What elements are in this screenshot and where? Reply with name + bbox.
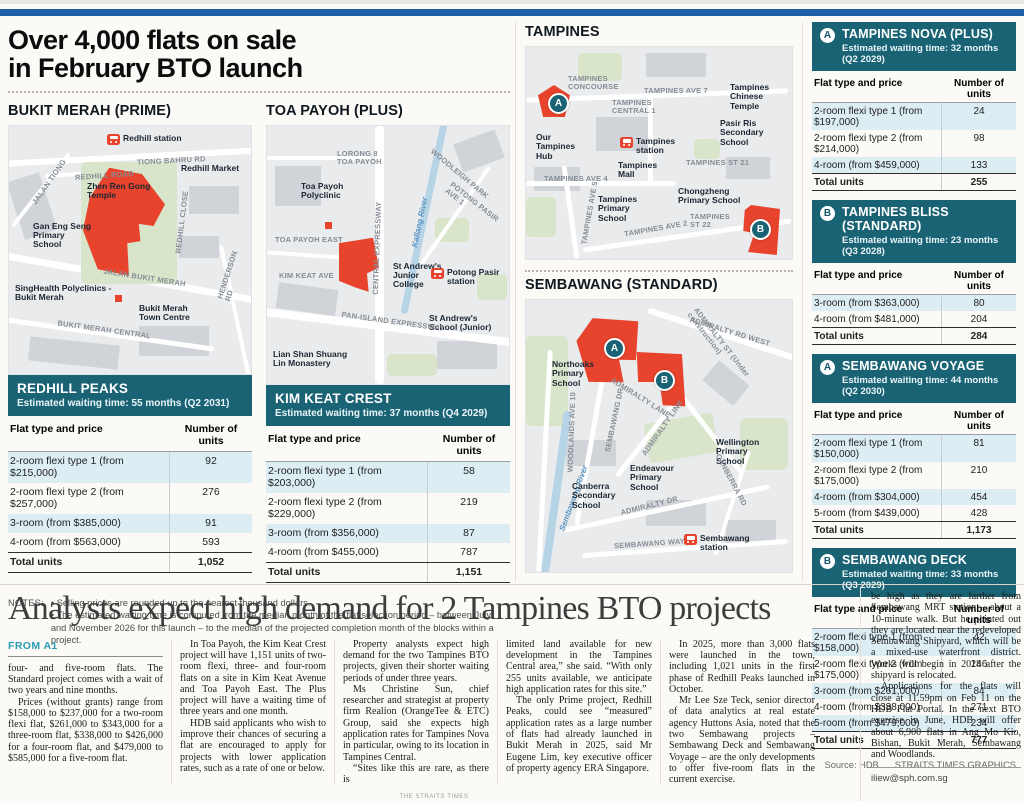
place-label: Redhill Market [181, 164, 239, 173]
park-area [526, 197, 556, 237]
bukit-merah-panel: BUKIT MERAH (PRIME) [8, 98, 252, 587]
column-header-units: Number of units [942, 75, 1016, 102]
road-label-label: TAMPINES AVE 5 [580, 181, 599, 245]
article-paragraph: Applications for the flats will close at… [871, 681, 1021, 760]
place-label: Bukit Merah Town Centre [139, 304, 190, 323]
column-header-units: Number of units [942, 267, 1016, 294]
flat-type-cell: 4-room (from $481,000) [812, 311, 941, 327]
table-header-text: TAMPINES NOVA (PLUS)Estimated waiting ti… [842, 27, 1008, 65]
infographic-title: Over 4,000 flats on sale in February BTO… [8, 26, 510, 83]
units-cell: 80 [941, 295, 1016, 311]
redhill-peaks-table: REDHILL PEAKSEstimated waiting time: 55 … [8, 375, 252, 573]
table-header-text: KIM KEAT CRESTEstimated waiting time: 37… [275, 391, 487, 419]
place-label: Gan Eng Seng Primary School [33, 222, 91, 250]
table-header-text: TAMPINES BLISS (STANDARD)Estimated waiti… [842, 205, 1008, 257]
article-columns: FROM A1 four- and five-room flats. The S… [8, 639, 860, 785]
bto-infographic: Over 4,000 flats on sale in February BTO… [8, 22, 1016, 582]
road-label-label: LORONG 8 TOA PAYOH [337, 150, 382, 167]
station-label-text: Sembawang station [700, 534, 750, 553]
road-label-label: TAMPINES ST 22 [690, 213, 730, 230]
kicker-rule [8, 656, 163, 657]
table-total-row: Total units1,052 [8, 552, 252, 573]
table-total-row: Total units284 [812, 327, 1016, 345]
place-label: Endeavour Primary School [630, 464, 674, 492]
project-name: KIM KEAT CREST [275, 391, 487, 406]
column-header-units: Number of units [942, 407, 1016, 434]
article-column-3: Property analysts expect high demand for… [334, 639, 497, 785]
table-total-row: Total units1,151 [266, 562, 510, 583]
waiting-time: Estimated waiting time: 37 months (Q4 20… [275, 408, 487, 419]
map-buildings [189, 186, 239, 214]
masthead-rule [0, 9, 1024, 16]
article-paragraph: four- and five-room flats. The Standard … [8, 663, 163, 697]
table-row: 2-room flexi type 2 (from $214,000)98 [812, 130, 1016, 157]
flat-type-cell: 3-room (from $363,000) [812, 295, 941, 311]
article-paragraph: Property analysts expect high demand for… [343, 639, 489, 684]
column-header-units: Number of units [170, 420, 252, 451]
table-row: 4-room (from $563,000)593 [8, 533, 252, 552]
flat-type-cell: 2-room flexi type 1 (from $197,000) [812, 103, 941, 130]
place-label: Lian Shan Shuang Lin Monastery [273, 350, 347, 369]
table-header-band: REDHILL PEAKSEstimated waiting time: 55 … [8, 375, 252, 416]
table-header-text: REDHILL PEAKSEstimated waiting time: 55 … [17, 381, 229, 409]
polyclinic-marker [115, 295, 122, 302]
article-column-1: FROM A1 four- and five-room flats. The S… [8, 639, 171, 785]
project-name: TAMPINES BLISS (STANDARD) [842, 205, 1008, 233]
station-label-text: Tampines station [636, 137, 675, 156]
flat-type-cell: 3-room (from $356,000) [266, 524, 427, 543]
table-total-row: Total units1,173 [812, 521, 1016, 539]
flat-type-cell: 4-room (from $459,000) [812, 157, 941, 173]
dotted-divider [8, 91, 510, 93]
waiting-time: Estimated waiting time: 44 months (Q2 20… [842, 375, 1008, 397]
place-label: SingHealth Polyclinics - Bukit Merah [15, 284, 111, 303]
road-label-label: TAMPINES CENTRAL 1 [612, 99, 656, 116]
straits-times-footer: THE STRAITS TIMES [8, 794, 860, 800]
park-area [694, 139, 720, 159]
total-label: Total units [812, 174, 941, 190]
units-cell: 204 [941, 311, 1016, 327]
table-header-band: KIM KEAT CRESTEstimated waiting time: 37… [266, 385, 510, 426]
units-cell: 210 [941, 462, 1016, 489]
article-column-6: be high as they are farther from Sembawa… [860, 587, 1021, 801]
map-buildings [646, 53, 706, 77]
column-header-units: Number of units [428, 430, 510, 461]
flat-type-cell: 2-room flexi type 2 (from $214,000) [812, 130, 941, 157]
road-label-label: TAMPINES AVE 7 [644, 87, 708, 95]
table-total-row: Total units255 [812, 173, 1016, 191]
table-row: 2-room flexi type 1 (from $203,000)58 [266, 462, 510, 493]
road-label-label: KIM KEAT AVE [279, 272, 334, 280]
article-main: Analysts expect high demand for 2 Tampin… [8, 587, 860, 801]
column-header-flat-type: Flat type and price [812, 75, 942, 102]
water-label: Kallang River [411, 196, 430, 248]
article-paragraph: In 2025, more than 3,000 flats were laun… [669, 639, 815, 695]
map-marker-a: A [548, 93, 569, 114]
train-station-icon [107, 134, 120, 145]
column-text: In Toa Payoh, the Kim Keat Crest project… [180, 639, 326, 775]
station-label: Sembawang station [684, 534, 750, 553]
toa-payoh-panel: TOA PAYOH (PLUS) L [266, 98, 510, 587]
dotted-divider [525, 270, 793, 272]
total-label: Total units [8, 553, 169, 572]
section-heading-tampines: TAMPINES [525, 24, 793, 40]
map-buildings [179, 236, 219, 258]
flat-type-cell: 2-room flexi type 2 (from $229,000) [266, 493, 427, 524]
flat-type-cell: 3-room (from $385,000) [8, 514, 169, 533]
units-cell: 92 [169, 452, 252, 483]
column-header-flat-type: Flat type and price [812, 267, 942, 294]
table-row: 2-room flexi type 2 (from $229,000)219 [266, 493, 510, 524]
table-row: 2-room flexi type 1 (from $215,000)92 [8, 452, 252, 483]
table-column-headers: Flat type and priceNumber of units [812, 267, 1016, 295]
page-top-edge [0, 0, 1024, 4]
article-paragraph: be high as they are farther from Sembawa… [871, 591, 1021, 681]
sembawang-map: ADMIRALTY RD WESTADMIRALTY ST (Under con… [525, 299, 793, 573]
place-label: Pasir Ris Secondary School [720, 119, 763, 147]
map-buildings [437, 341, 497, 369]
station-label-text: Potong Pasir station [447, 268, 499, 287]
toa-payoh-map: LORONG 8 TOA PAYOHToa Payoh PolyclinicTO… [266, 125, 510, 385]
article-paragraph: limited land available for new developme… [506, 639, 652, 695]
map-marker-b: B [750, 219, 771, 240]
infographic-right-tables: ATAMPINES NOVA (PLUS)Estimated waiting t… [803, 22, 1016, 582]
flat-type-cell: 4-room (from $455,000) [266, 543, 427, 562]
park-area [387, 354, 437, 376]
table-column-headers: Flat type and priceNumber of units [812, 75, 1016, 103]
article-column-4: limited land available for new developme… [497, 639, 660, 785]
total-units: 1,173 [941, 522, 1016, 538]
place-label: Tampines Chinese Temple [730, 83, 769, 111]
flat-type-cell: 2-room flexi type 1 (from $203,000) [266, 462, 427, 493]
article-column-2: In Toa Payoh, the Kim Keat Crest project… [171, 639, 334, 785]
place-label: Northoaks Primary School [552, 360, 594, 388]
map-badge-a: A [820, 28, 835, 43]
map-badge-b: B [820, 554, 835, 569]
waiting-time: Estimated waiting time: 32 months (Q2 20… [842, 43, 1008, 65]
station-label: Tampines station [620, 137, 675, 156]
units-cell: 24 [941, 103, 1016, 130]
place-label: Canberra Secondary School [572, 482, 615, 510]
table-row: 3-room (from $356,000)87 [266, 524, 510, 543]
project-name: REDHILL PEAKS [17, 381, 229, 396]
column-text: Property analysts expect high demand for… [343, 639, 489, 785]
place-label: Chongzheng Primary School [678, 187, 740, 206]
map-badge-a: A [820, 360, 835, 375]
units-cell: 98 [941, 130, 1016, 157]
sembawang-voyage-table: ASEMBAWANG VOYAGEEstimated waiting time:… [812, 354, 1016, 539]
map-marker-a: A [604, 338, 625, 359]
article-paragraph: “Sites like this are rare, as there is [343, 763, 489, 785]
units-cell: 58 [427, 462, 510, 493]
place-label: Toa Payoh Polyclinic [301, 182, 343, 201]
table-row: 5-room (from $439,000)428 [812, 505, 1016, 521]
table-row: 4-room (from $459,000)133 [812, 157, 1016, 173]
table-header-text: SEMBAWANG VOYAGEEstimated waiting time: … [842, 359, 1008, 397]
units-cell: 428 [941, 505, 1016, 521]
train-station-icon [431, 268, 444, 279]
total-label: Total units [812, 522, 941, 538]
road-label-label: TOA PAYOH EAST [275, 236, 343, 244]
units-cell: 81 [941, 435, 1016, 462]
section-heading-toa-payoh: TOA PAYOH (PLUS) [266, 103, 510, 119]
road-label-label: TAMPINES ST 21 [686, 159, 749, 167]
table-row: 3-room (from $363,000)80 [812, 295, 1016, 311]
section-heading-sembawang: SEMBAWANG (STANDARD) [525, 277, 793, 293]
map-buildings [28, 336, 120, 369]
newspaper-page: { "infographic": { "title": "Over 4,000 … [0, 0, 1024, 801]
place-label: Zhen Ren Gong Temple [87, 182, 150, 201]
article-section: Analysts expect high demand for 2 Tampin… [0, 584, 1024, 801]
polyclinic-marker [325, 222, 332, 229]
flat-type-cell: 2-room flexi type 1 (from $150,000) [812, 435, 941, 462]
place-label: Tampines Primary School [598, 195, 637, 223]
author-email: iliew@sph.com.sg [871, 767, 1021, 784]
table-row: 3-room (from $385,000)91 [8, 514, 252, 533]
table-header-band: BTAMPINES BLISS (STANDARD)Estimated wait… [812, 200, 1016, 263]
column-text: In 2025, more than 3,000 flats were laun… [669, 639, 815, 785]
article-paragraph: Ms Christine Sun, chief researcher and s… [343, 684, 489, 763]
column-text: limited land available for new developme… [506, 639, 652, 775]
units-cell: 276 [169, 483, 252, 514]
total-units: 284 [941, 328, 1016, 344]
flat-type-cell: 2-room flexi type 2 (from $175,000) [812, 462, 941, 489]
table-row: 4-room (from $455,000)787 [266, 543, 510, 562]
column-text: be high as they are farther from Sembawa… [871, 591, 1021, 760]
column-header-flat-type: Flat type and price [266, 430, 428, 461]
total-label: Total units [266, 563, 427, 582]
flat-type-cell: 4-room (from $563,000) [8, 533, 169, 552]
station-label-text: Redhill station [123, 134, 182, 143]
units-cell: 133 [941, 157, 1016, 173]
section-heading-bukit-merah: BUKIT MERAH (PRIME) [8, 103, 252, 119]
table-row: 2-room flexi type 2 (from $257,000)276 [8, 483, 252, 514]
table-header-band: ASEMBAWANG VOYAGEEstimated waiting time:… [812, 354, 1016, 403]
total-units: 1,151 [427, 563, 510, 582]
tampines-nova-table: ATAMPINES NOVA (PLUS)Estimated waiting t… [812, 22, 1016, 191]
column-header-flat-type: Flat type and price [812, 407, 942, 434]
map-buildings [453, 129, 505, 172]
units-cell: 219 [427, 493, 510, 524]
article-headline: Analysts expect high demand for 2 Tampin… [8, 591, 860, 627]
total-units: 1,052 [169, 553, 252, 572]
map-badge-b: B [820, 206, 835, 221]
place-label: Our Tampines Hub [536, 133, 575, 161]
continued-from-kicker: FROM A1 [8, 640, 163, 652]
table-row: 4-room (from $481,000)204 [812, 311, 1016, 327]
tampines-map: TAMPINES CONCOURSEATAMPINES AVE 7Tampine… [525, 46, 793, 260]
flat-type-cell: 2-room flexi type 2 (from $257,000) [8, 483, 169, 514]
units-cell: 454 [941, 489, 1016, 505]
train-station-icon [620, 137, 633, 148]
total-label: Total units [812, 328, 941, 344]
article-paragraph: Mr Lee Sze Teck, senior director of data… [669, 695, 815, 785]
station-label: Redhill station [107, 134, 182, 145]
column-header-flat-type: Flat type and price [8, 420, 170, 451]
flat-type-cell: 2-room flexi type 1 (from $215,000) [8, 452, 169, 483]
infographic-left-columns: Over 4,000 flats on sale in February BTO… [8, 22, 510, 582]
waiting-time: Estimated waiting time: 23 months (Q3 20… [842, 235, 1008, 257]
road-label-label: TAMPINES CONCOURSE [568, 75, 619, 92]
column-text: four- and five-room flats. The Standard … [8, 663, 163, 765]
units-cell: 593 [169, 533, 252, 552]
project-name: SEMBAWANG DECK [842, 553, 1008, 567]
table-column-headers: Flat type and priceNumber of units [812, 407, 1016, 435]
kim-keat-crest-table: KIM KEAT CRESTEstimated waiting time: 37… [266, 385, 510, 583]
table-row: 2-room flexi type 2 (from $175,000)210 [812, 462, 1016, 489]
units-cell: 787 [427, 543, 510, 562]
article-paragraph: The only Prime project, Redhill Peaks, c… [506, 695, 652, 774]
article-paragraph: Prices (without grants) range from $158,… [8, 697, 163, 765]
article-paragraph: HDB said applicants who wish to improve … [180, 718, 326, 774]
units-cell: 91 [169, 514, 252, 533]
project-name: TAMPINES NOVA (PLUS) [842, 27, 1008, 41]
project-name: SEMBAWANG VOYAGE [842, 359, 1008, 373]
flat-type-cell: 4-room (from $304,000) [812, 489, 941, 505]
table-row: 2-room flexi type 1 (from $150,000)81 [812, 435, 1016, 462]
table-column-headers: Flat type and priceNumber of units [266, 430, 510, 462]
table-row: 2-room flexi type 1 (from $197,000)24 [812, 103, 1016, 130]
total-units: 255 [941, 174, 1016, 190]
bukit-merah-map: Redhill stationTIONG BAHRU RDJALAN TIONG… [8, 125, 252, 375]
article-column-5: In 2025, more than 3,000 flats were laun… [660, 639, 823, 785]
station-label: Potong Pasir station [431, 268, 499, 287]
map-marker-b: B [654, 370, 675, 391]
units-cell: 87 [427, 524, 510, 543]
infographic-middle-column: TAMPINES TAMPINES CONCOURSEATAMPINES AVE… [515, 22, 803, 582]
table-column-headers: Flat type and priceNumber of units [8, 420, 252, 452]
table-header-band: ATAMPINES NOVA (PLUS)Estimated waiting t… [812, 22, 1016, 71]
article-paragraph: In Toa Payoh, the Kim Keat Crest project… [180, 639, 326, 718]
place-label: Tampines Mall [618, 161, 657, 180]
flat-type-cell: 5-room (from $439,000) [812, 505, 941, 521]
train-station-icon [684, 534, 697, 545]
waiting-time: Estimated waiting time: 55 months (Q2 20… [17, 398, 229, 409]
tampines-bliss-table: BTAMPINES BLISS (STANDARD)Estimated wait… [812, 200, 1016, 345]
table-row: 4-room (from $304,000)454 [812, 489, 1016, 505]
